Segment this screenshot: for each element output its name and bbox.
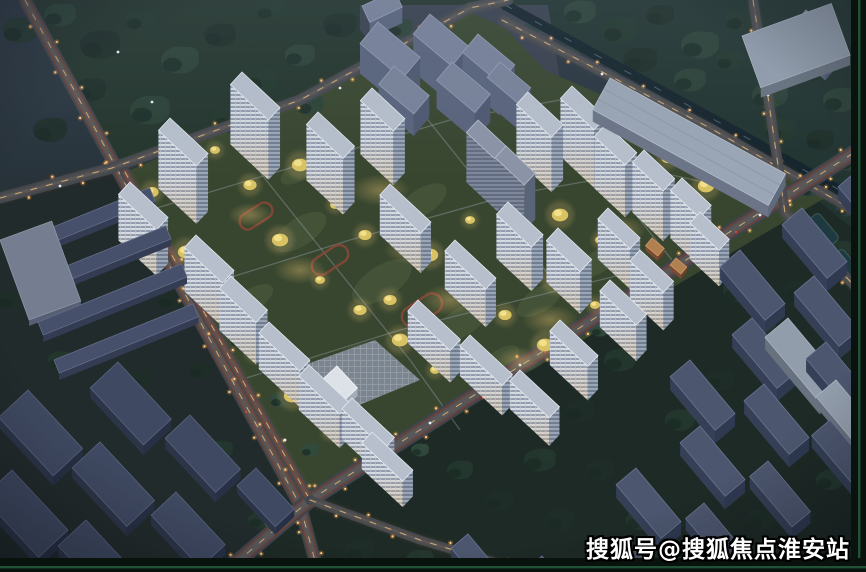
vignette (0, 0, 866, 572)
aerial-render (0, 0, 866, 572)
sohu-watermark: 搜狐号@搜狐焦点淮安站 (586, 530, 850, 564)
right-border-line (858, 0, 860, 572)
aerial-render-screenshot: 搜狐号@搜狐焦点淮安站 (0, 0, 866, 572)
bottom-border-line (0, 566, 866, 568)
